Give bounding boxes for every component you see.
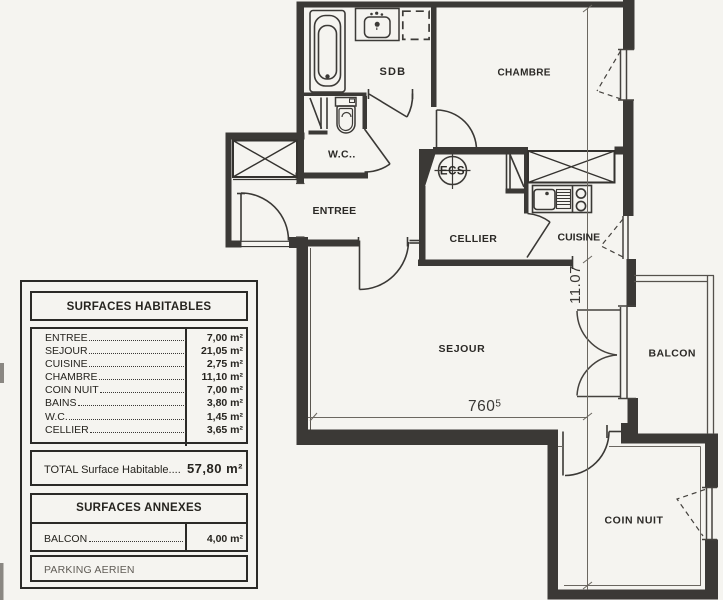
svg-text:ENTREE: ENTREE (313, 205, 357, 217)
svg-text:SEJOUR: SEJOUR (439, 343, 486, 355)
svg-text:CELLIER: CELLIER (450, 233, 498, 245)
svg-text:BALCON: BALCON (649, 348, 696, 360)
svg-text:11.07: 11.07 (567, 265, 584, 304)
svg-text:W.C..: W.C.. (328, 149, 356, 161)
svg-text:7605: 7605 (468, 398, 501, 415)
svg-text:CHAMBRE: CHAMBRE (498, 68, 551, 79)
svg-text:COIN NUIT: COIN NUIT (605, 515, 664, 527)
svg-text:ECS: ECS (440, 166, 465, 178)
svg-text:SDB: SDB (380, 66, 407, 78)
svg-text:CUISINE: CUISINE (558, 232, 601, 244)
